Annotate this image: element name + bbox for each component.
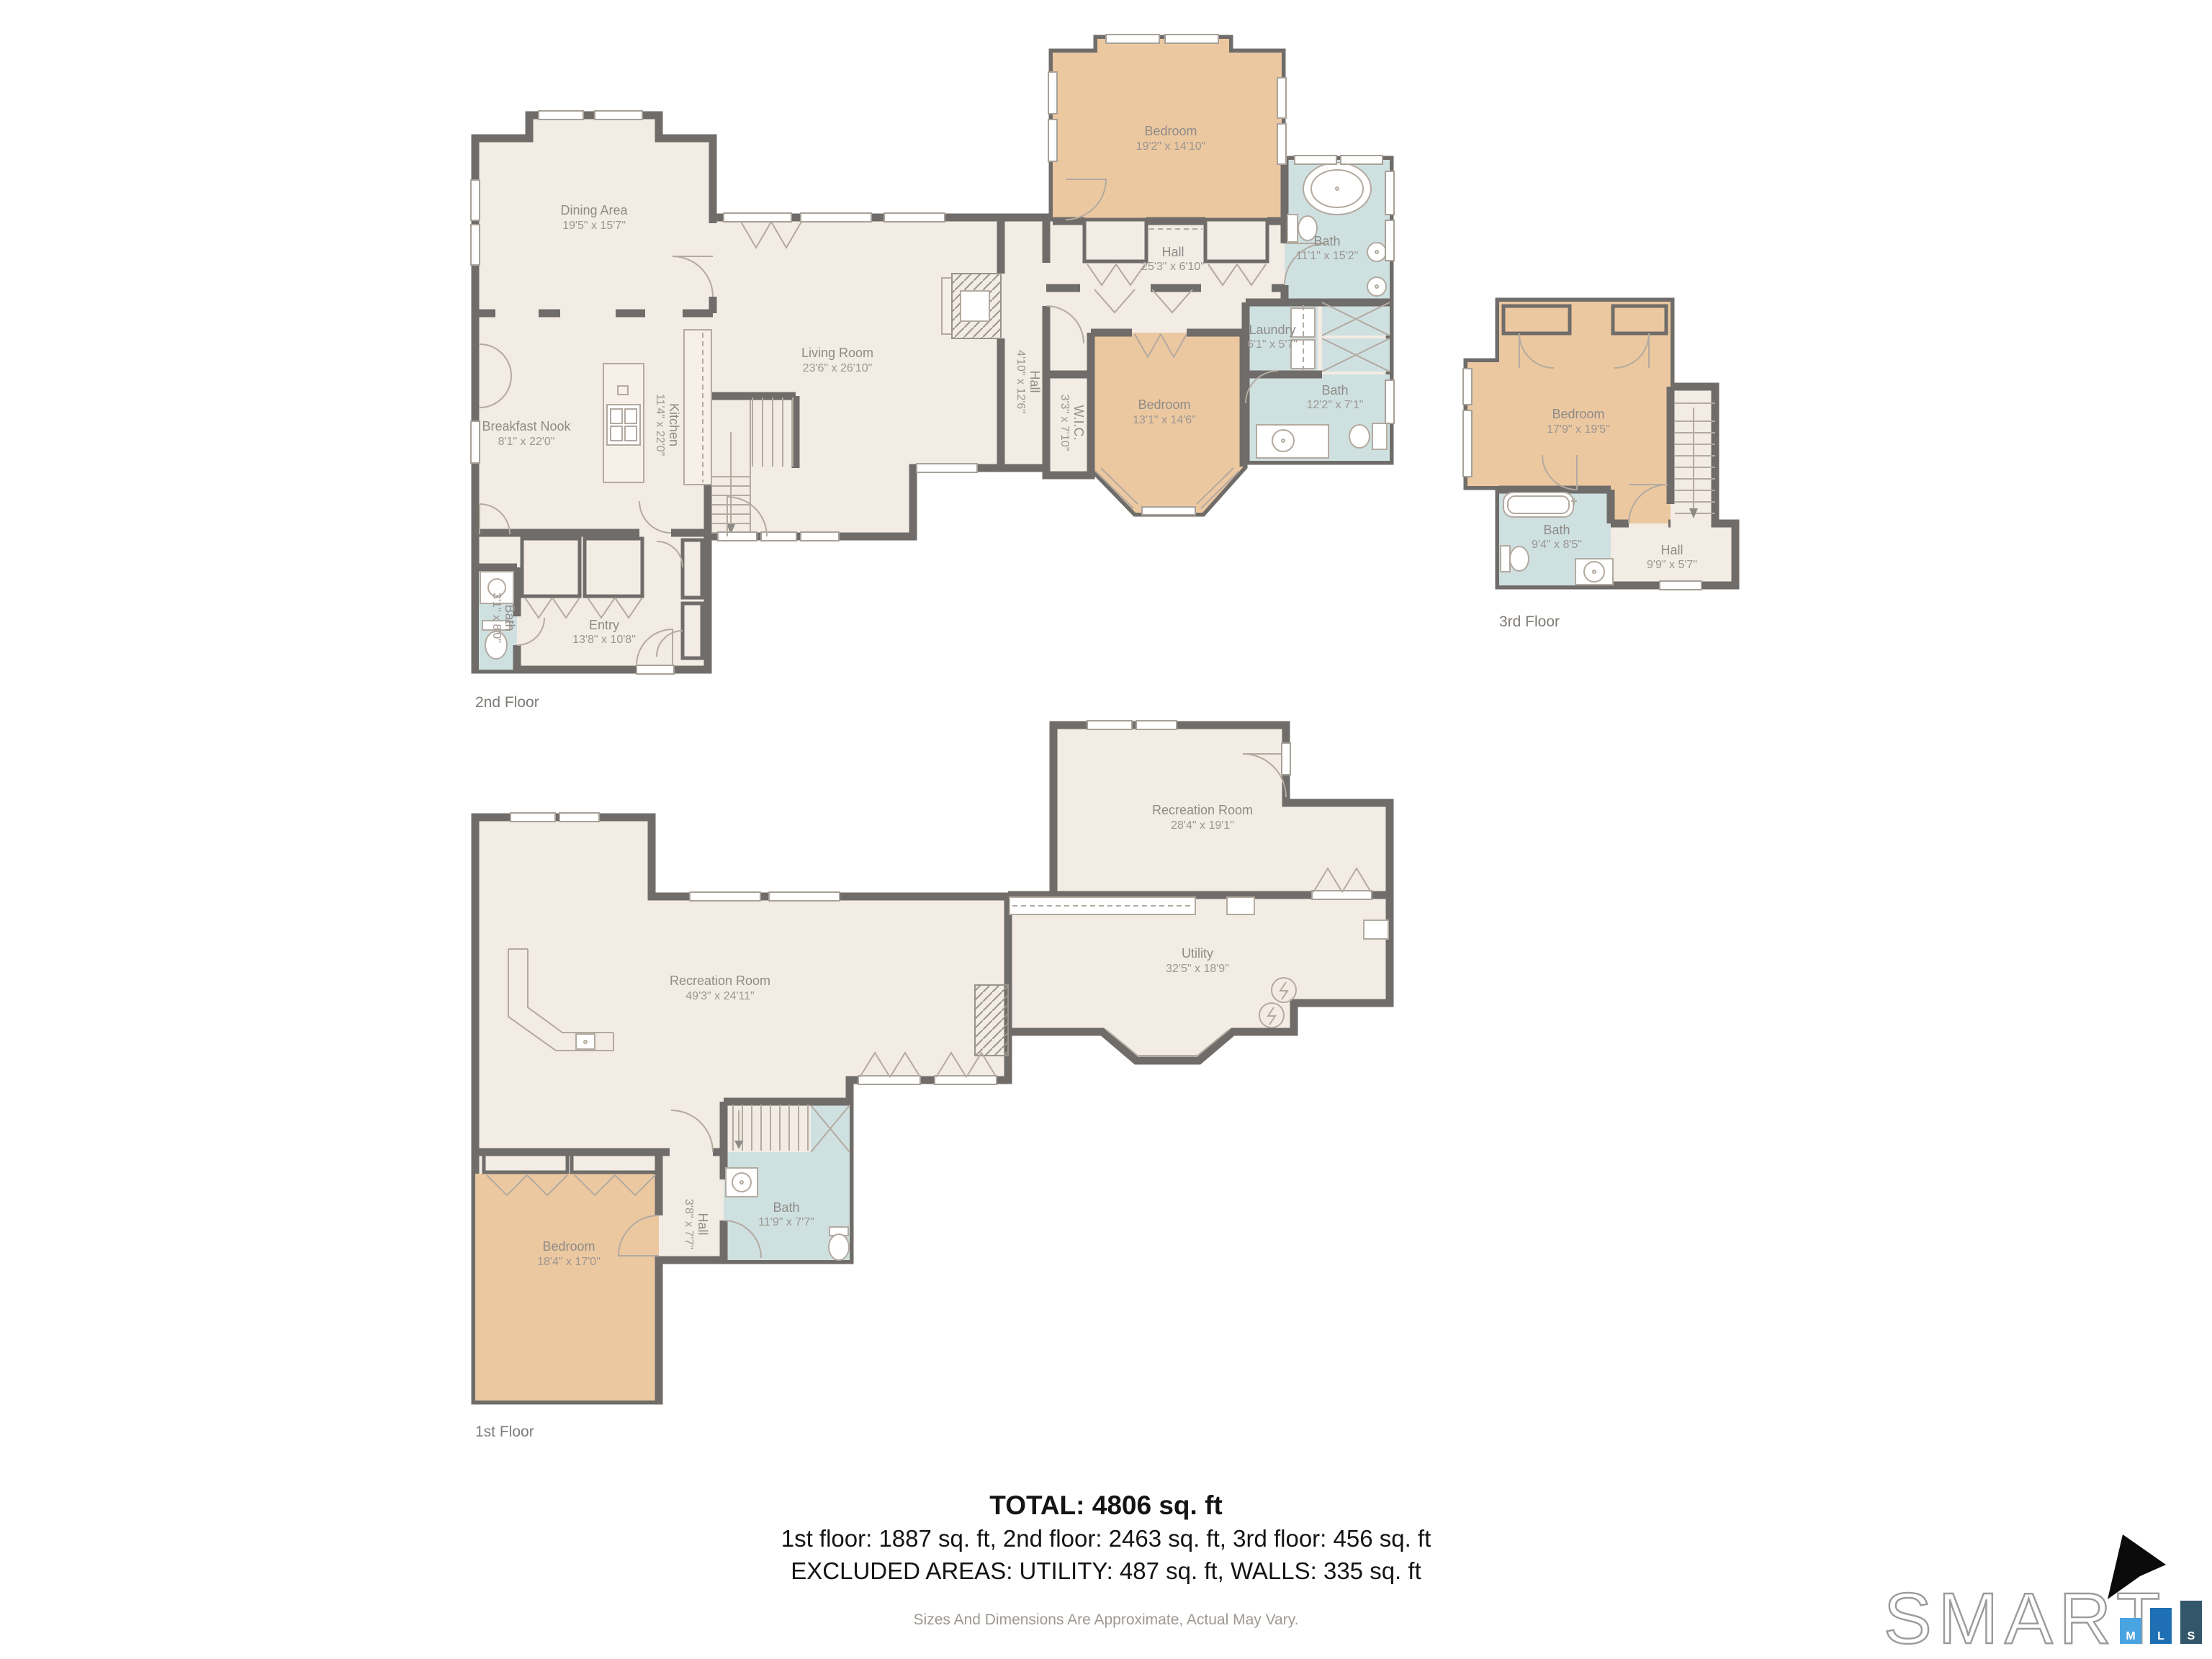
room-bedroom1-fill [475,1174,659,1401]
bath-entry-dims: 3'1" x 8'0" [490,593,503,643]
utility-dims: 32'5" x 18'9" [1166,963,1229,975]
hall1-label: Hall [696,1213,710,1235]
sink-icon [726,1168,757,1197]
toilet-icon [1501,546,1529,572]
hall1-dims: 3'8" x 7'7" [683,1199,695,1249]
bar-l-letter: L [2157,1630,2164,1642]
hall-top-dims: 25'3" x 6'10" [1141,261,1205,273]
bath3-label: Bath [1543,523,1570,537]
wic-label: W.I.C. [1071,405,1086,441]
first-floor-plan: Recreation Room 49'3" x 24'11" Recreatio… [475,721,1390,1440]
first-floor-label: 1st Floor [475,1424,534,1440]
fireplace-icon [942,274,1001,338]
bedroom-mid-label: Bedroom [1138,397,1190,412]
dining-area-dims: 19'5" x 15'7" [562,220,626,232]
excluded-areas-text: EXCLUDED AREAS: UTILITY: 487 sq. ft, WAL… [0,1555,2212,1587]
dining-area-label: Dining Area [560,203,628,217]
rec-left-label: Recreation Room [670,974,770,988]
utility-label: Utility [1182,946,1213,961]
kitchen-label: Kitchen [667,403,681,446]
hall3-dims: 9'9" x 5'7" [1647,559,1697,571]
rec-right-dims: 28'4" x 19'1" [1171,819,1234,832]
bathtub-icon [1503,493,1577,517]
bedroom3-label: Bedroom [1552,407,1604,421]
entry-label: Entry [589,618,619,632]
rec-left-dims: 49'3" x 24'11" [685,990,754,1002]
wic-dims: 3'3" x 7'10" [1058,395,1071,451]
floor-areas-text: 1st floor: 1887 sq. ft, 2nd floor: 2463 … [0,1522,2212,1555]
bath-top-dims: 11'1" x 15'2" [1296,250,1359,262]
laundry-dims: 6'1" x 5'7" [1247,338,1298,351]
bath-mid-label: Bath [1321,383,1348,397]
bath-entry-label: Bath [503,604,517,631]
disclaimer-text: Sizes And Dimensions Are Approximate, Ac… [0,1611,2212,1629]
bedroom1-dims: 18'4" x 17'0" [537,1256,601,1268]
vanity-sink-icon [1256,425,1328,458]
bar-s-letter: S [2188,1630,2195,1642]
bathtub-icon [1303,163,1371,215]
summary-text: TOTAL: 4806 sq. ft 1st floor: 1887 sq. f… [0,1489,2212,1587]
room-bedroom3-notch-fill [1467,362,1503,486]
kitchen-dims: 11'4" x 22'0" [654,394,666,457]
hall3-label: Hall [1660,543,1683,557]
entry-dims: 13'8" x 10'8" [572,634,636,646]
bedroom-mid-dims: 13'1" x 14'6" [1133,414,1196,426]
bedroom1-label: Bedroom [542,1239,595,1254]
toilet-icon [829,1227,849,1260]
breakfast-nook-label: Breakfast Nook [482,419,571,433]
breakfast-nook-dims: 8'1" x 22'0" [498,436,555,448]
bath-top-label: Bath [1313,234,1340,248]
hall-mid-label: Hall [1028,370,1042,392]
total-area-text: TOTAL: 4806 sq. ft [0,1489,2212,1522]
chimney-hatch [975,985,1008,1056]
bath1-dims: 11'9" x 7'7" [758,1216,814,1228]
sink-icon [1575,559,1613,585]
hall-top-label: Hall [1161,245,1184,259]
window [1142,507,1195,515]
second-floor-label: 2nd Floor [475,694,539,711]
third-floor-plan: Bedroom 17'9" x 19'5" Bath 9'4" x 8'5" H… [1463,302,1735,630]
bath-mid-dims: 12'2" x 7'1" [1307,399,1364,411]
toilet-icon [1287,215,1317,242]
rec-right-label: Recreation Room [1152,803,1253,817]
hall-mid-dims: 4'10" x 12'6" [1015,350,1027,413]
second-floor-plan: Dining Area 19'5" x 15'7" Living Room 23… [471,35,1394,711]
bedroom-top-dims: 19'2" x 14'10" [1136,140,1206,153]
bedroom-top-label: Bedroom [1144,124,1197,138]
bath3-dims: 9'4" x 8'5" [1532,539,1582,551]
living-room-label: Living Room [801,346,873,360]
living-room-dims: 23'6" x 26'10" [803,362,873,374]
bath1-label: Bath [773,1200,799,1215]
floor-plan-canvas: Dining Area 19'5" x 15'7" Living Room 23… [0,0,2212,1659]
kitchen-counter [684,330,711,485]
bar-m-letter: M [2126,1630,2135,1642]
third-floor-label: 3rd Floor [1499,613,1560,630]
bedroom3-dims: 17'9" x 19'5" [1547,423,1610,436]
laundry-label: Laundry [1249,323,1295,337]
